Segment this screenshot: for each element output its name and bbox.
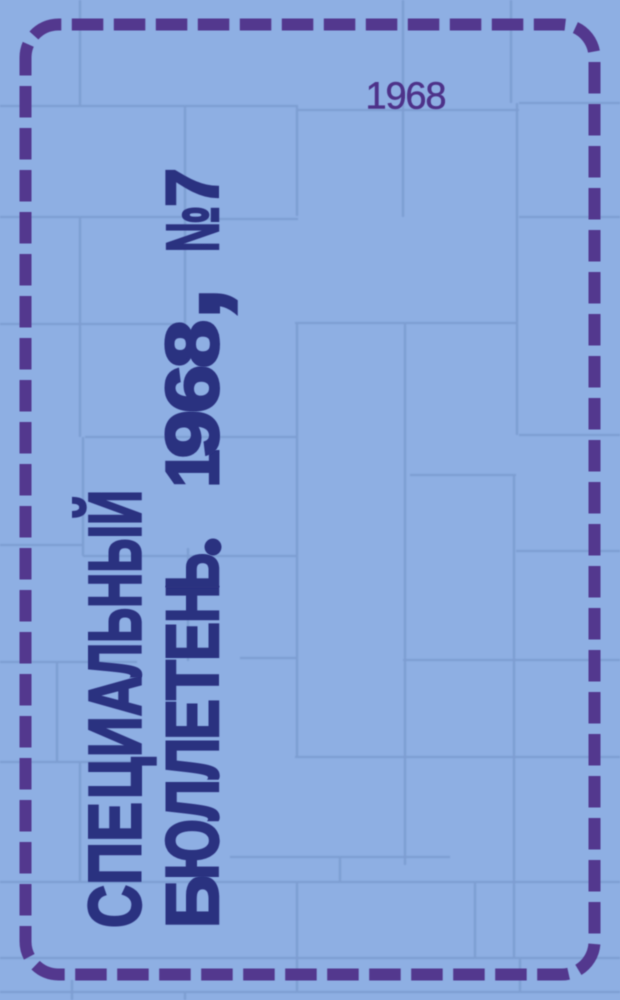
svg-text:6: 6 [151, 365, 234, 413]
svg-text:Ь: Ь [151, 553, 234, 590]
svg-text:Т: Т [151, 660, 234, 700]
svg-text:Е: Е [151, 622, 234, 661]
svg-text:ЛЬНЫЙ: ЛЬНЫЙ [73, 490, 157, 677]
svg-text:7: 7 [151, 168, 234, 207]
svg-text:Е: Е [151, 699, 234, 740]
svg-text:8: 8 [151, 320, 234, 368]
svg-text:ЛЛ: ЛЛ [151, 738, 234, 821]
svg-text:№: № [151, 206, 234, 252]
svg-text:Б: Б [151, 875, 234, 929]
svg-text:Ю: Ю [151, 819, 234, 880]
svg-text:,: , [115, 288, 243, 320]
svg-text:СПЕ: СПЕ [74, 802, 157, 928]
svg-text:ЦИА: ЦИА [74, 675, 157, 799]
svg-text:9: 9 [151, 410, 234, 458]
svg-text:1968: 1968 [366, 76, 447, 118]
